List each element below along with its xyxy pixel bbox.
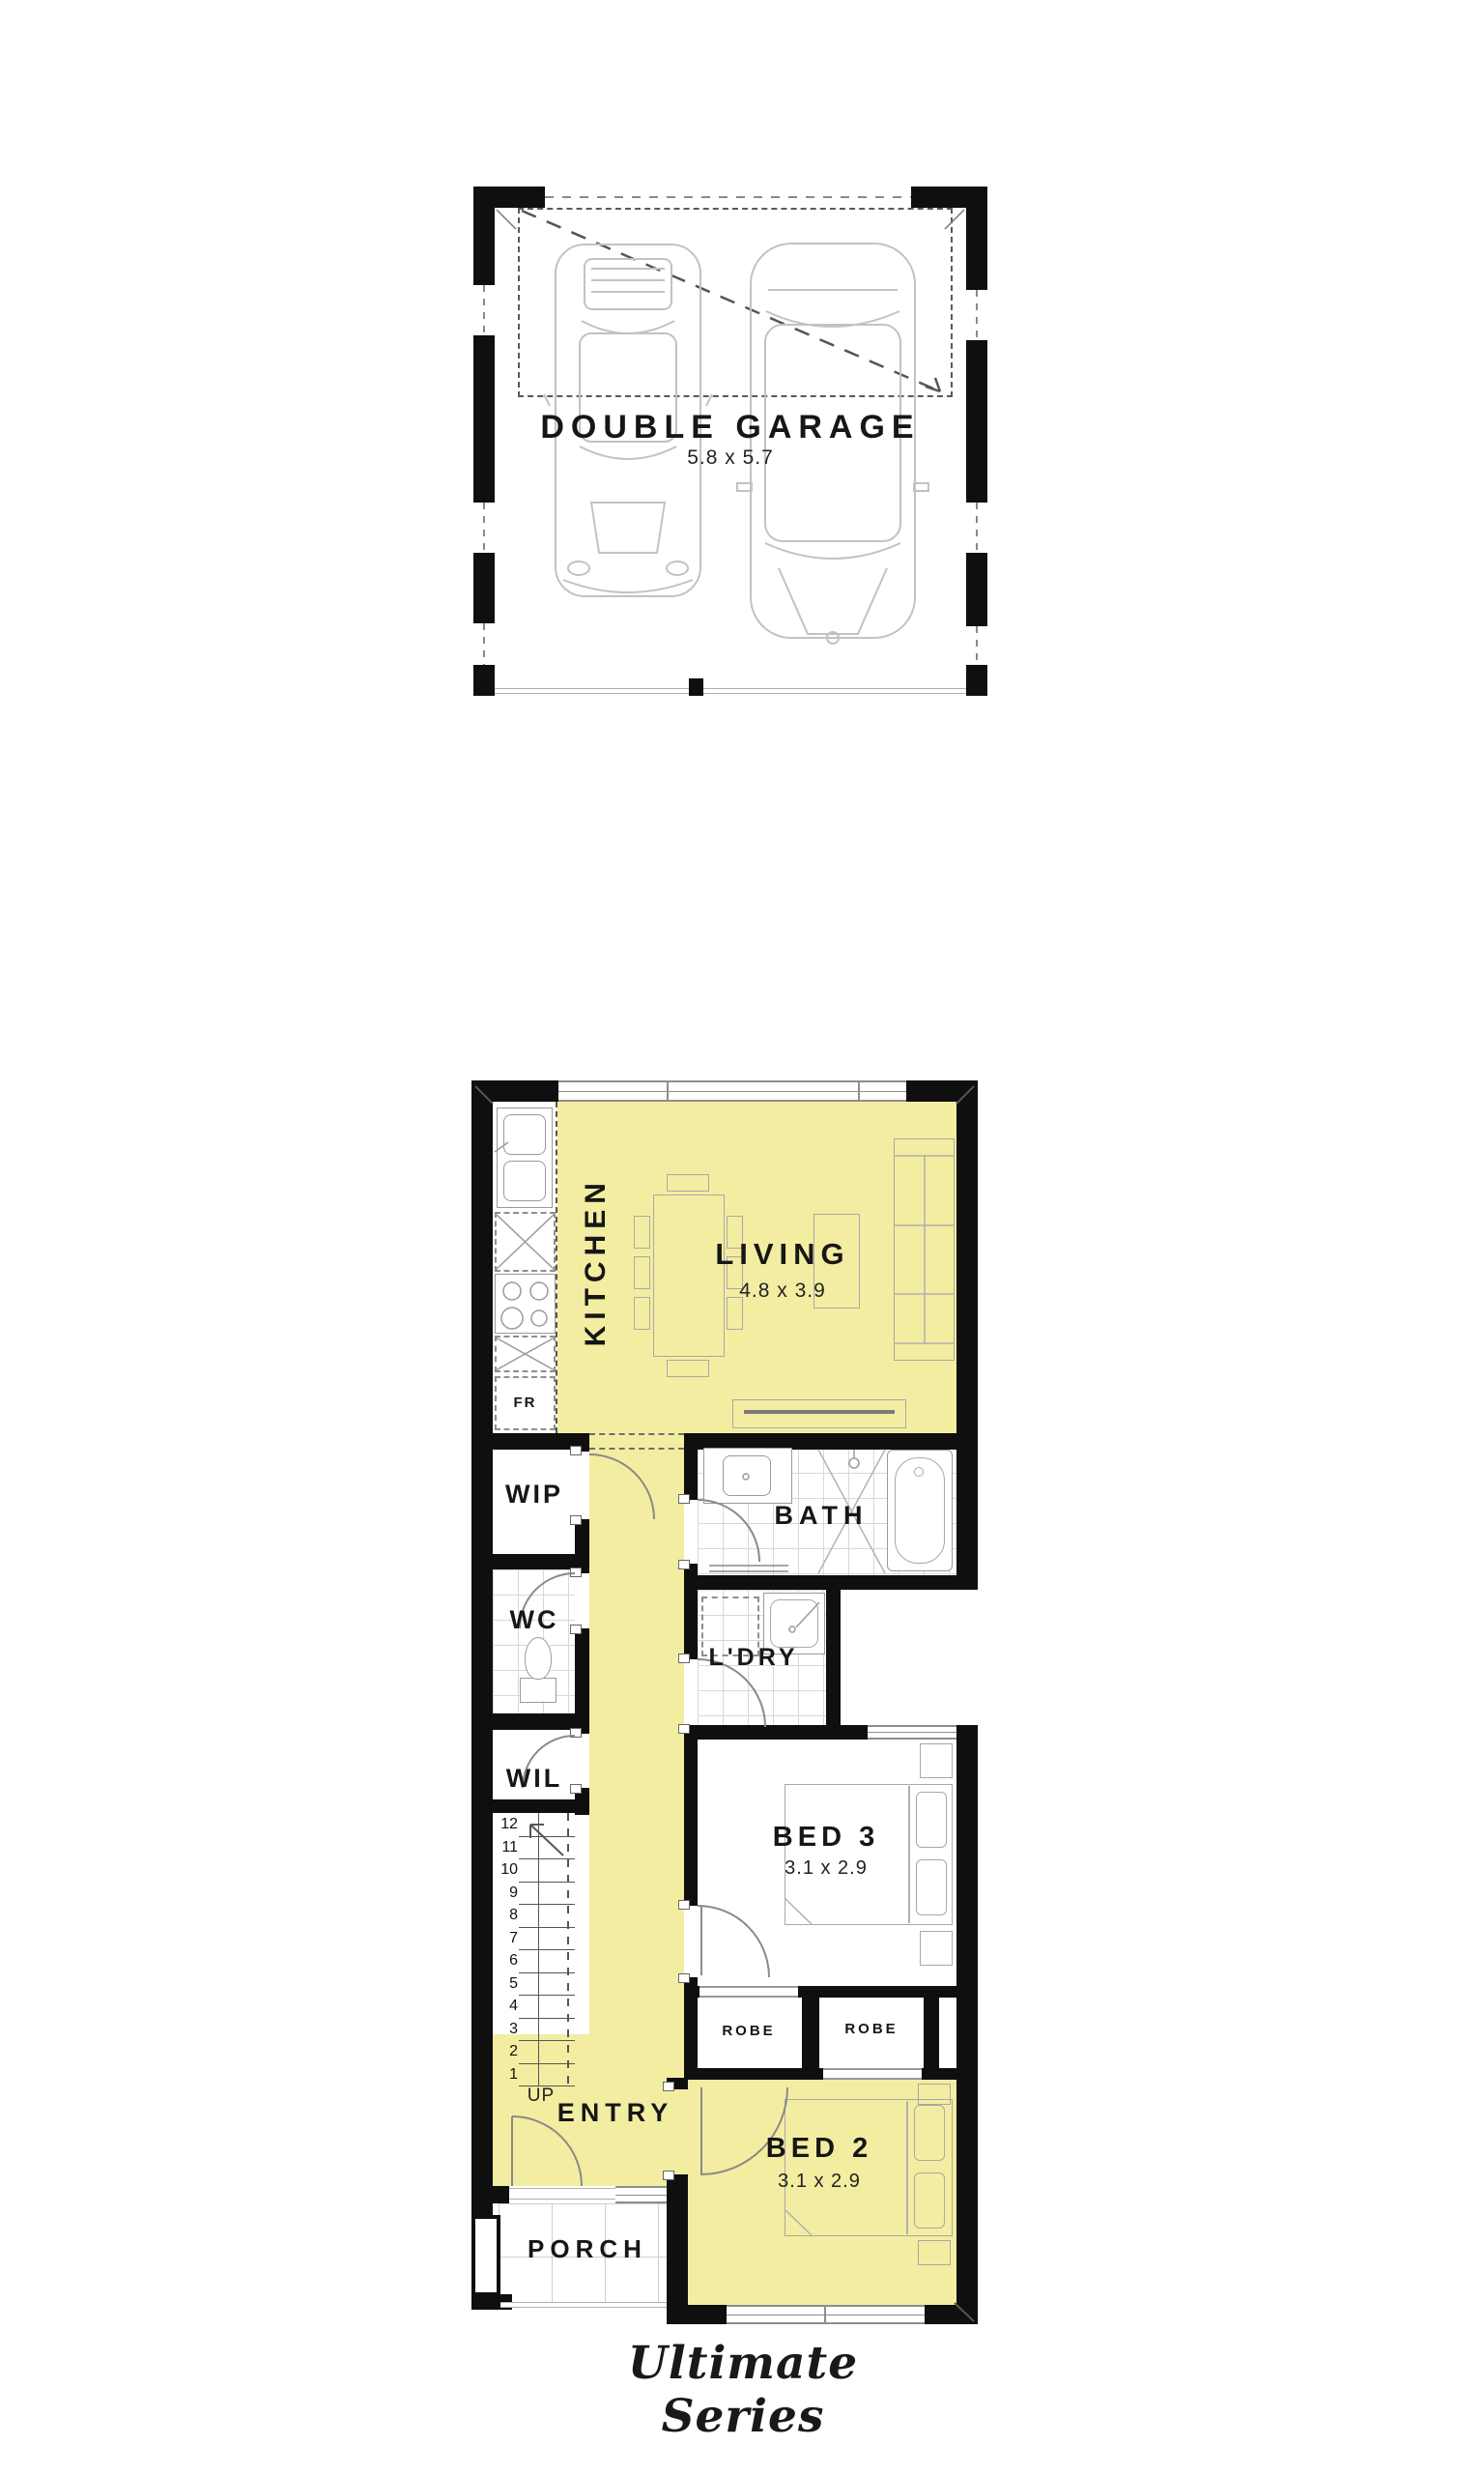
shower-rose xyxy=(849,1458,859,1468)
garage-room-dims: 5.8 x 5.7 xyxy=(518,446,943,470)
room-label-wc: WC xyxy=(481,1606,587,1633)
room-label-robe-right: ROBE xyxy=(819,2022,924,2037)
garage-room-label: DOUBLE GARAGE xyxy=(518,411,943,446)
kitchen-tap xyxy=(495,1142,508,1152)
garage-diagonal-arrowhead xyxy=(926,378,940,391)
laundry-tap xyxy=(796,1602,819,1627)
bed3-door-arc xyxy=(698,1906,769,1977)
room-dims-living: 4.8 x 3.9 xyxy=(676,1280,889,1303)
room-label-wip: WIP xyxy=(481,1481,587,1508)
room-label-porch: PORCH xyxy=(500,2236,674,2262)
bed3-sheet-fold xyxy=(785,1898,812,1924)
room-dims-bed2: 3.1 x 2.9 xyxy=(732,2171,906,2193)
room-label-kitchen: KITCHEN xyxy=(581,1177,612,1346)
garage-corner-tick xyxy=(497,210,964,229)
bed2-sheet-fold xyxy=(785,2209,812,2235)
series-title: Ultimate Series xyxy=(569,2337,917,2399)
room-dims-bed3: 3.1 x 2.9 xyxy=(739,1857,913,1880)
room-label-wil: WIL xyxy=(481,1765,587,1792)
room-label-bed3: BED 3 xyxy=(739,1823,913,1852)
stair-up-arrow xyxy=(530,1825,563,1855)
room-label-bed2: BED 2 xyxy=(732,2134,906,2163)
room-label-robe-left: ROBE xyxy=(698,2024,800,2039)
floor-plan-page: DOUBLE GARAGE 5.8 x 5.7 xyxy=(0,0,1484,2474)
room-label-living: LIVING xyxy=(676,1239,889,1271)
room-label-entry: ENTRY xyxy=(528,2099,702,2126)
laundry-drain xyxy=(789,1626,795,1632)
basin-drain xyxy=(743,1474,749,1480)
sofa-cushion-lines xyxy=(894,1156,955,1343)
wip-door-arc xyxy=(589,1454,654,1519)
room-label-bath: BATH xyxy=(734,1502,908,1529)
towel-rail xyxy=(709,1566,788,1571)
room-label-ldry: L'DRY xyxy=(676,1645,831,1670)
kitchen-label-wrap: KITCHEN xyxy=(509,1175,683,1349)
